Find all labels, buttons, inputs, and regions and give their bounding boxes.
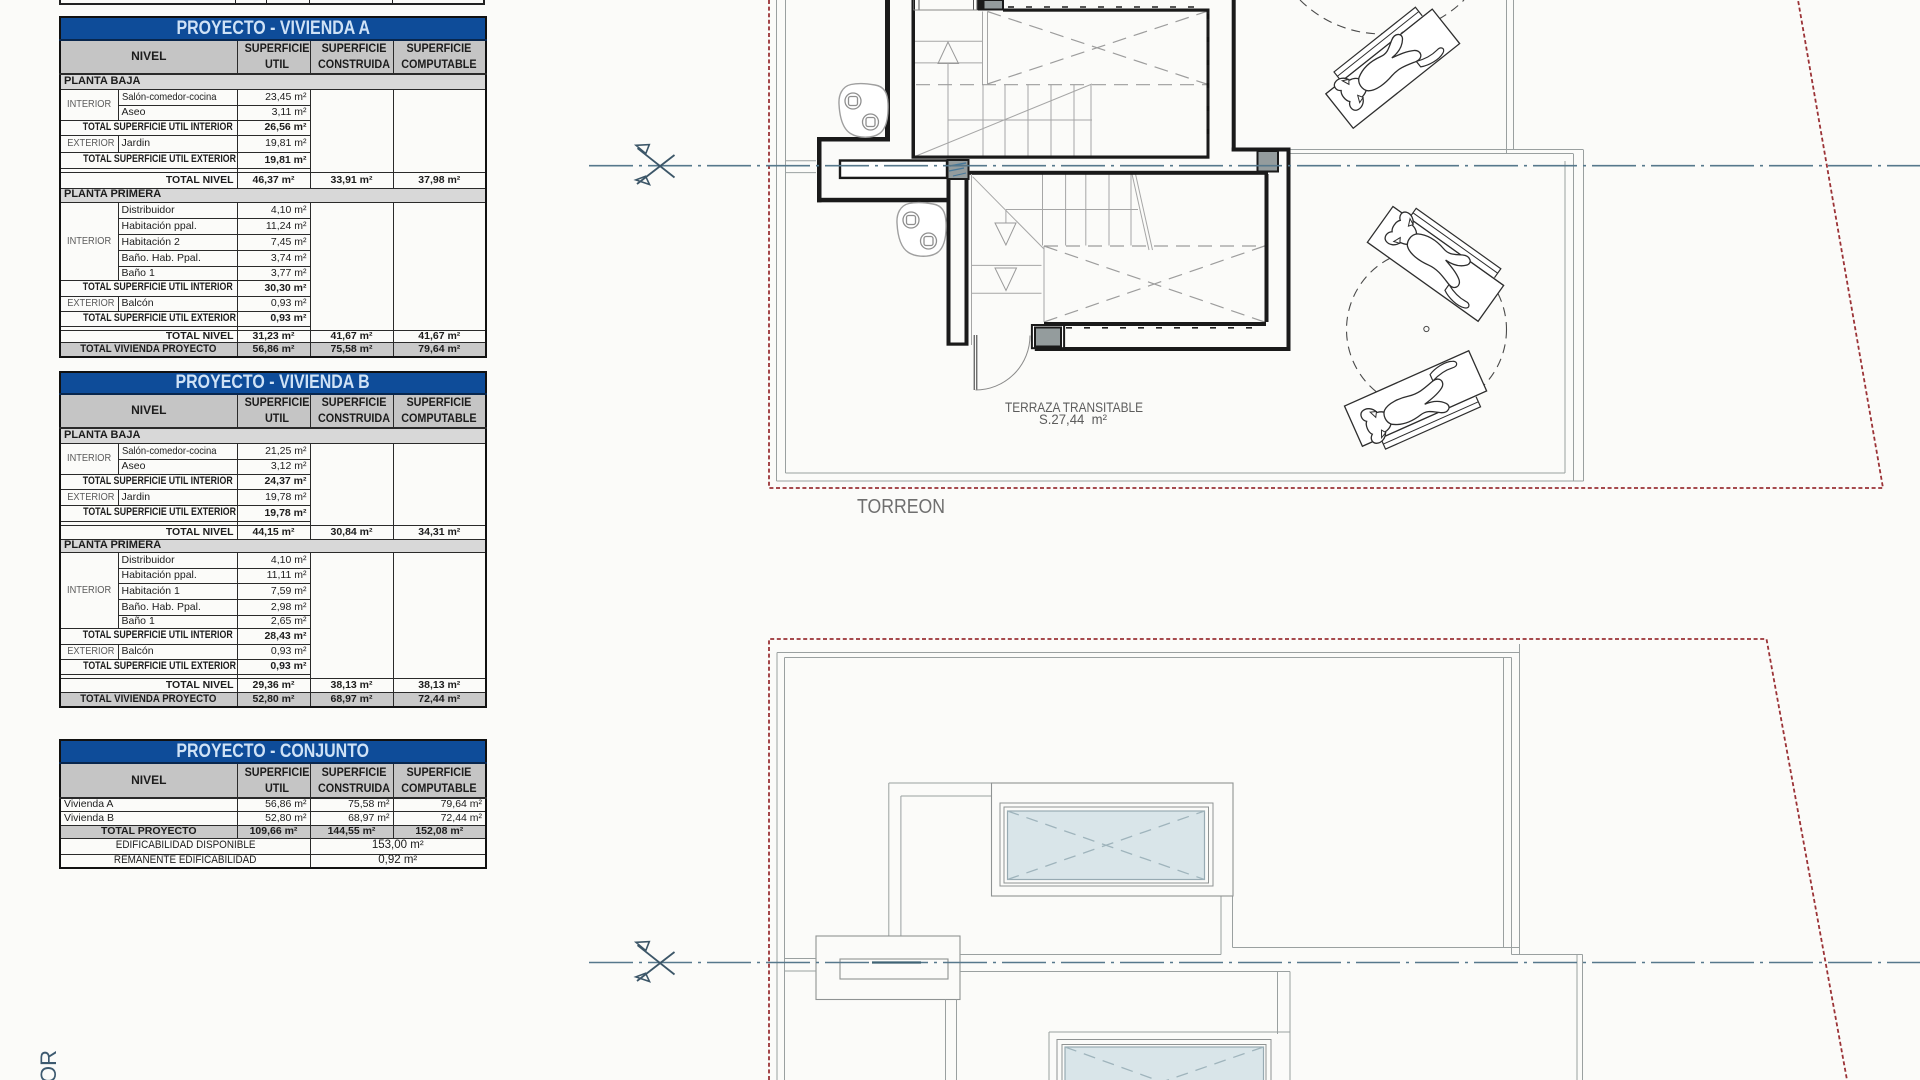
svg-text:S.27,44 m²: S.27,44 m²: [1039, 411, 1107, 427]
svg-text:TORREON: TORREON: [857, 496, 945, 518]
svg-text:OR: OR: [36, 1050, 61, 1080]
